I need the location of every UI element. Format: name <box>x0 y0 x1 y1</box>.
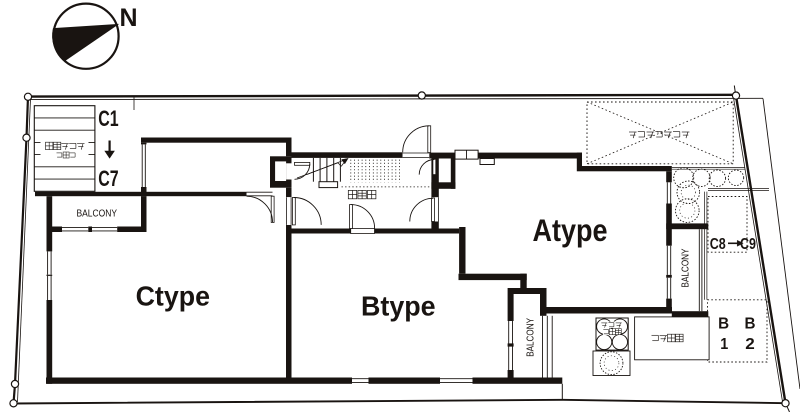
svg-text:B: B <box>718 316 729 333</box>
svg-text:Ctype: Ctype <box>136 280 210 311</box>
svg-text:C1: C1 <box>98 106 118 131</box>
svg-text:Btype: Btype <box>361 290 436 321</box>
svg-text:C7: C7 <box>98 166 118 191</box>
svg-text:N: N <box>120 4 138 32</box>
svg-text:BALCONY: BALCONY <box>524 318 536 357</box>
svg-text:1: 1 <box>720 336 728 353</box>
svg-text:Atype: Atype <box>533 212 608 248</box>
svg-text:BALCONY: BALCONY <box>77 208 118 220</box>
svg-text:2: 2 <box>745 336 755 353</box>
svg-text:C8: C8 <box>710 236 726 253</box>
svg-text:C9: C9 <box>740 236 756 253</box>
svg-text:BALCONY: BALCONY <box>680 249 692 288</box>
svg-text:B: B <box>745 316 756 333</box>
